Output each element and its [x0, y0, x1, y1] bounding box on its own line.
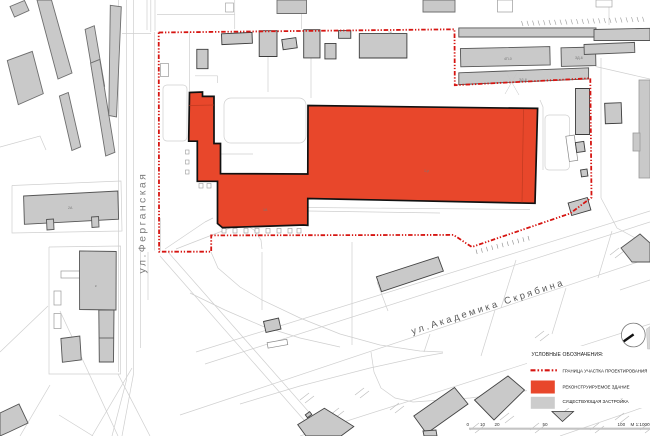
svg-text:4П-0: 4П-0 — [504, 57, 512, 61]
svg-text:100: 100 — [618, 422, 626, 427]
svg-text:ГРАНИЦА УЧАСТКА ПРОЕКТИРОВАНИЯ: ГРАНИЦА УЧАСТКА ПРОЕКТИРОВАНИЯ — [563, 368, 648, 373]
svg-text:ЗД-6: ЗД-6 — [575, 56, 583, 60]
svg-text:1А: 1А — [263, 208, 268, 212]
svg-text:УСЛОВНЫЕ ОБОЗНАЧЕНИЯ:: УСЛОВНЫЕ ОБОЗНАЧЕНИЯ: — [532, 352, 604, 358]
svg-text:0: 0 — [467, 422, 470, 427]
svg-text:1-р: 1-р — [424, 169, 429, 173]
svg-text:ул.Ферганская: ул.Ферганская — [137, 172, 149, 274]
svg-text:20: 20 — [495, 422, 501, 427]
svg-text:СУЩЕСТВУЮЩАЯ ЗАСТРОЙКА: СУЩЕСТВУЮЩАЯ ЗАСТРОЙКА — [563, 399, 629, 404]
svg-text:РЕКОНСТРУИРУЕМОЕ ЗДАНИЕ: РЕКОНСТРУИРУЕМОЕ ЗДАНИЕ — [563, 384, 630, 389]
svg-text:ЗД-8: ЗД-8 — [519, 78, 527, 82]
svg-text:М 1:1000: М 1:1000 — [631, 422, 650, 427]
svg-text:50: 50 — [543, 422, 549, 427]
svg-text:10: 10 — [480, 422, 486, 427]
svg-text:2А: 2А — [68, 206, 73, 210]
